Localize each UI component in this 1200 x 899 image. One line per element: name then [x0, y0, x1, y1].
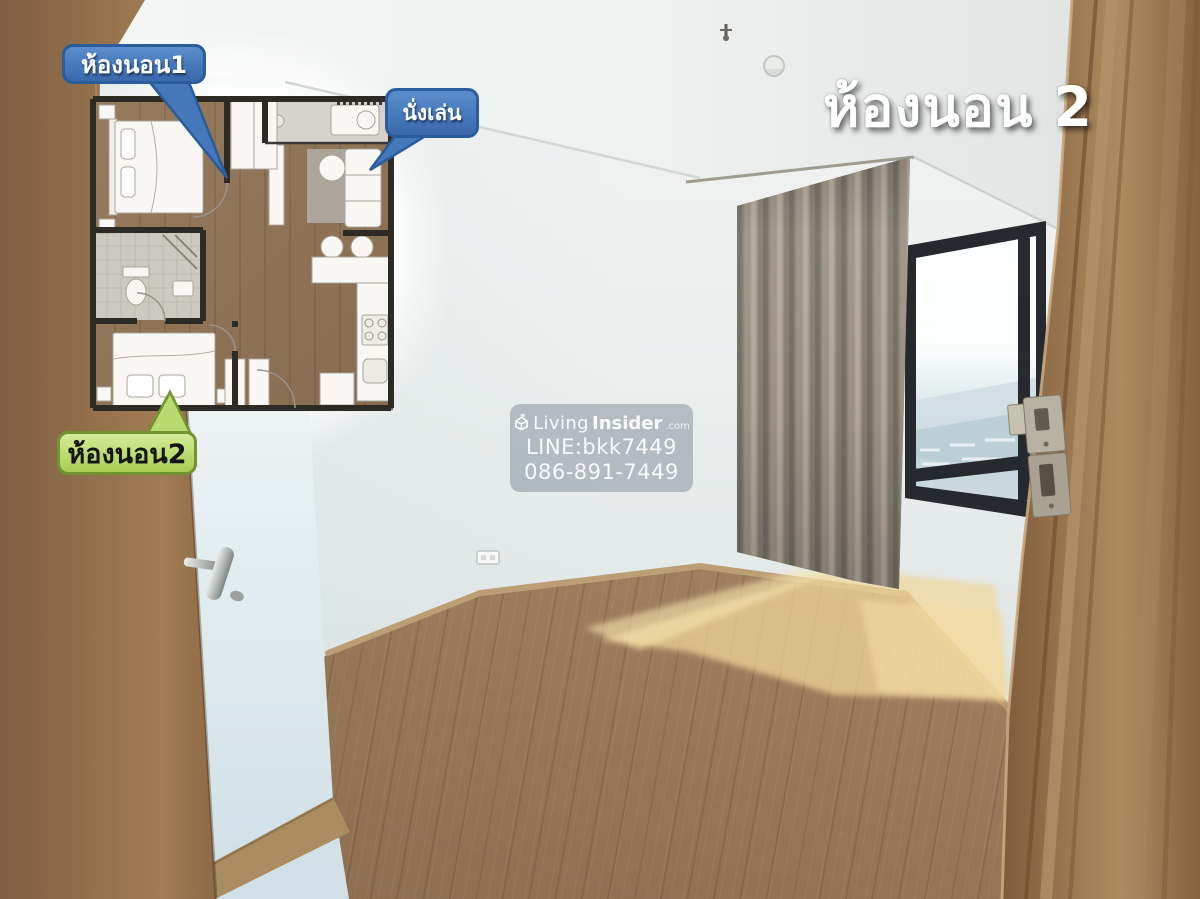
plan-balcony	[265, 99, 391, 143]
line-id: LINE:bkk7449	[526, 435, 677, 459]
living-bubble: นั่งเล่น	[385, 88, 479, 138]
sunlight-patch	[585, 568, 1008, 702]
phone-number: 086-891-7449	[524, 460, 679, 484]
plan-bathroom	[93, 232, 203, 320]
bedroom2-label-text: ห้องนอน2	[67, 432, 186, 475]
floor-plan	[93, 99, 393, 410]
brand-first: Living	[533, 413, 589, 434]
power-outlet	[477, 551, 499, 564]
sprinkler-icon	[720, 24, 732, 41]
bedroom-photo: ห้องนอน1 นั่งเล่น ห้องนอน2 ห้องนอน 2 Liv…	[0, 0, 1200, 899]
watermark-logo: LivingInsider.com	[513, 412, 690, 434]
bedroom2-label: ห้องนอน2	[57, 431, 197, 475]
brand-second: Insider	[592, 413, 662, 434]
bedroom1-bubble: ห้องนอน1	[62, 44, 206, 84]
brand-tld: .com	[665, 421, 690, 432]
living-bubble-label: นั่งเล่น	[402, 97, 461, 130]
smoke-detector-icon	[764, 56, 784, 76]
window	[905, 221, 1046, 520]
bedroom1-bubble-label: ห้องนอน1	[81, 45, 187, 84]
watermark: LivingInsider.com LINE:bkk7449 086-891-7…	[510, 404, 693, 492]
curtain	[737, 157, 912, 591]
house-icon	[513, 414, 530, 431]
room-title: ห้องนอน 2	[808, 64, 1108, 151]
